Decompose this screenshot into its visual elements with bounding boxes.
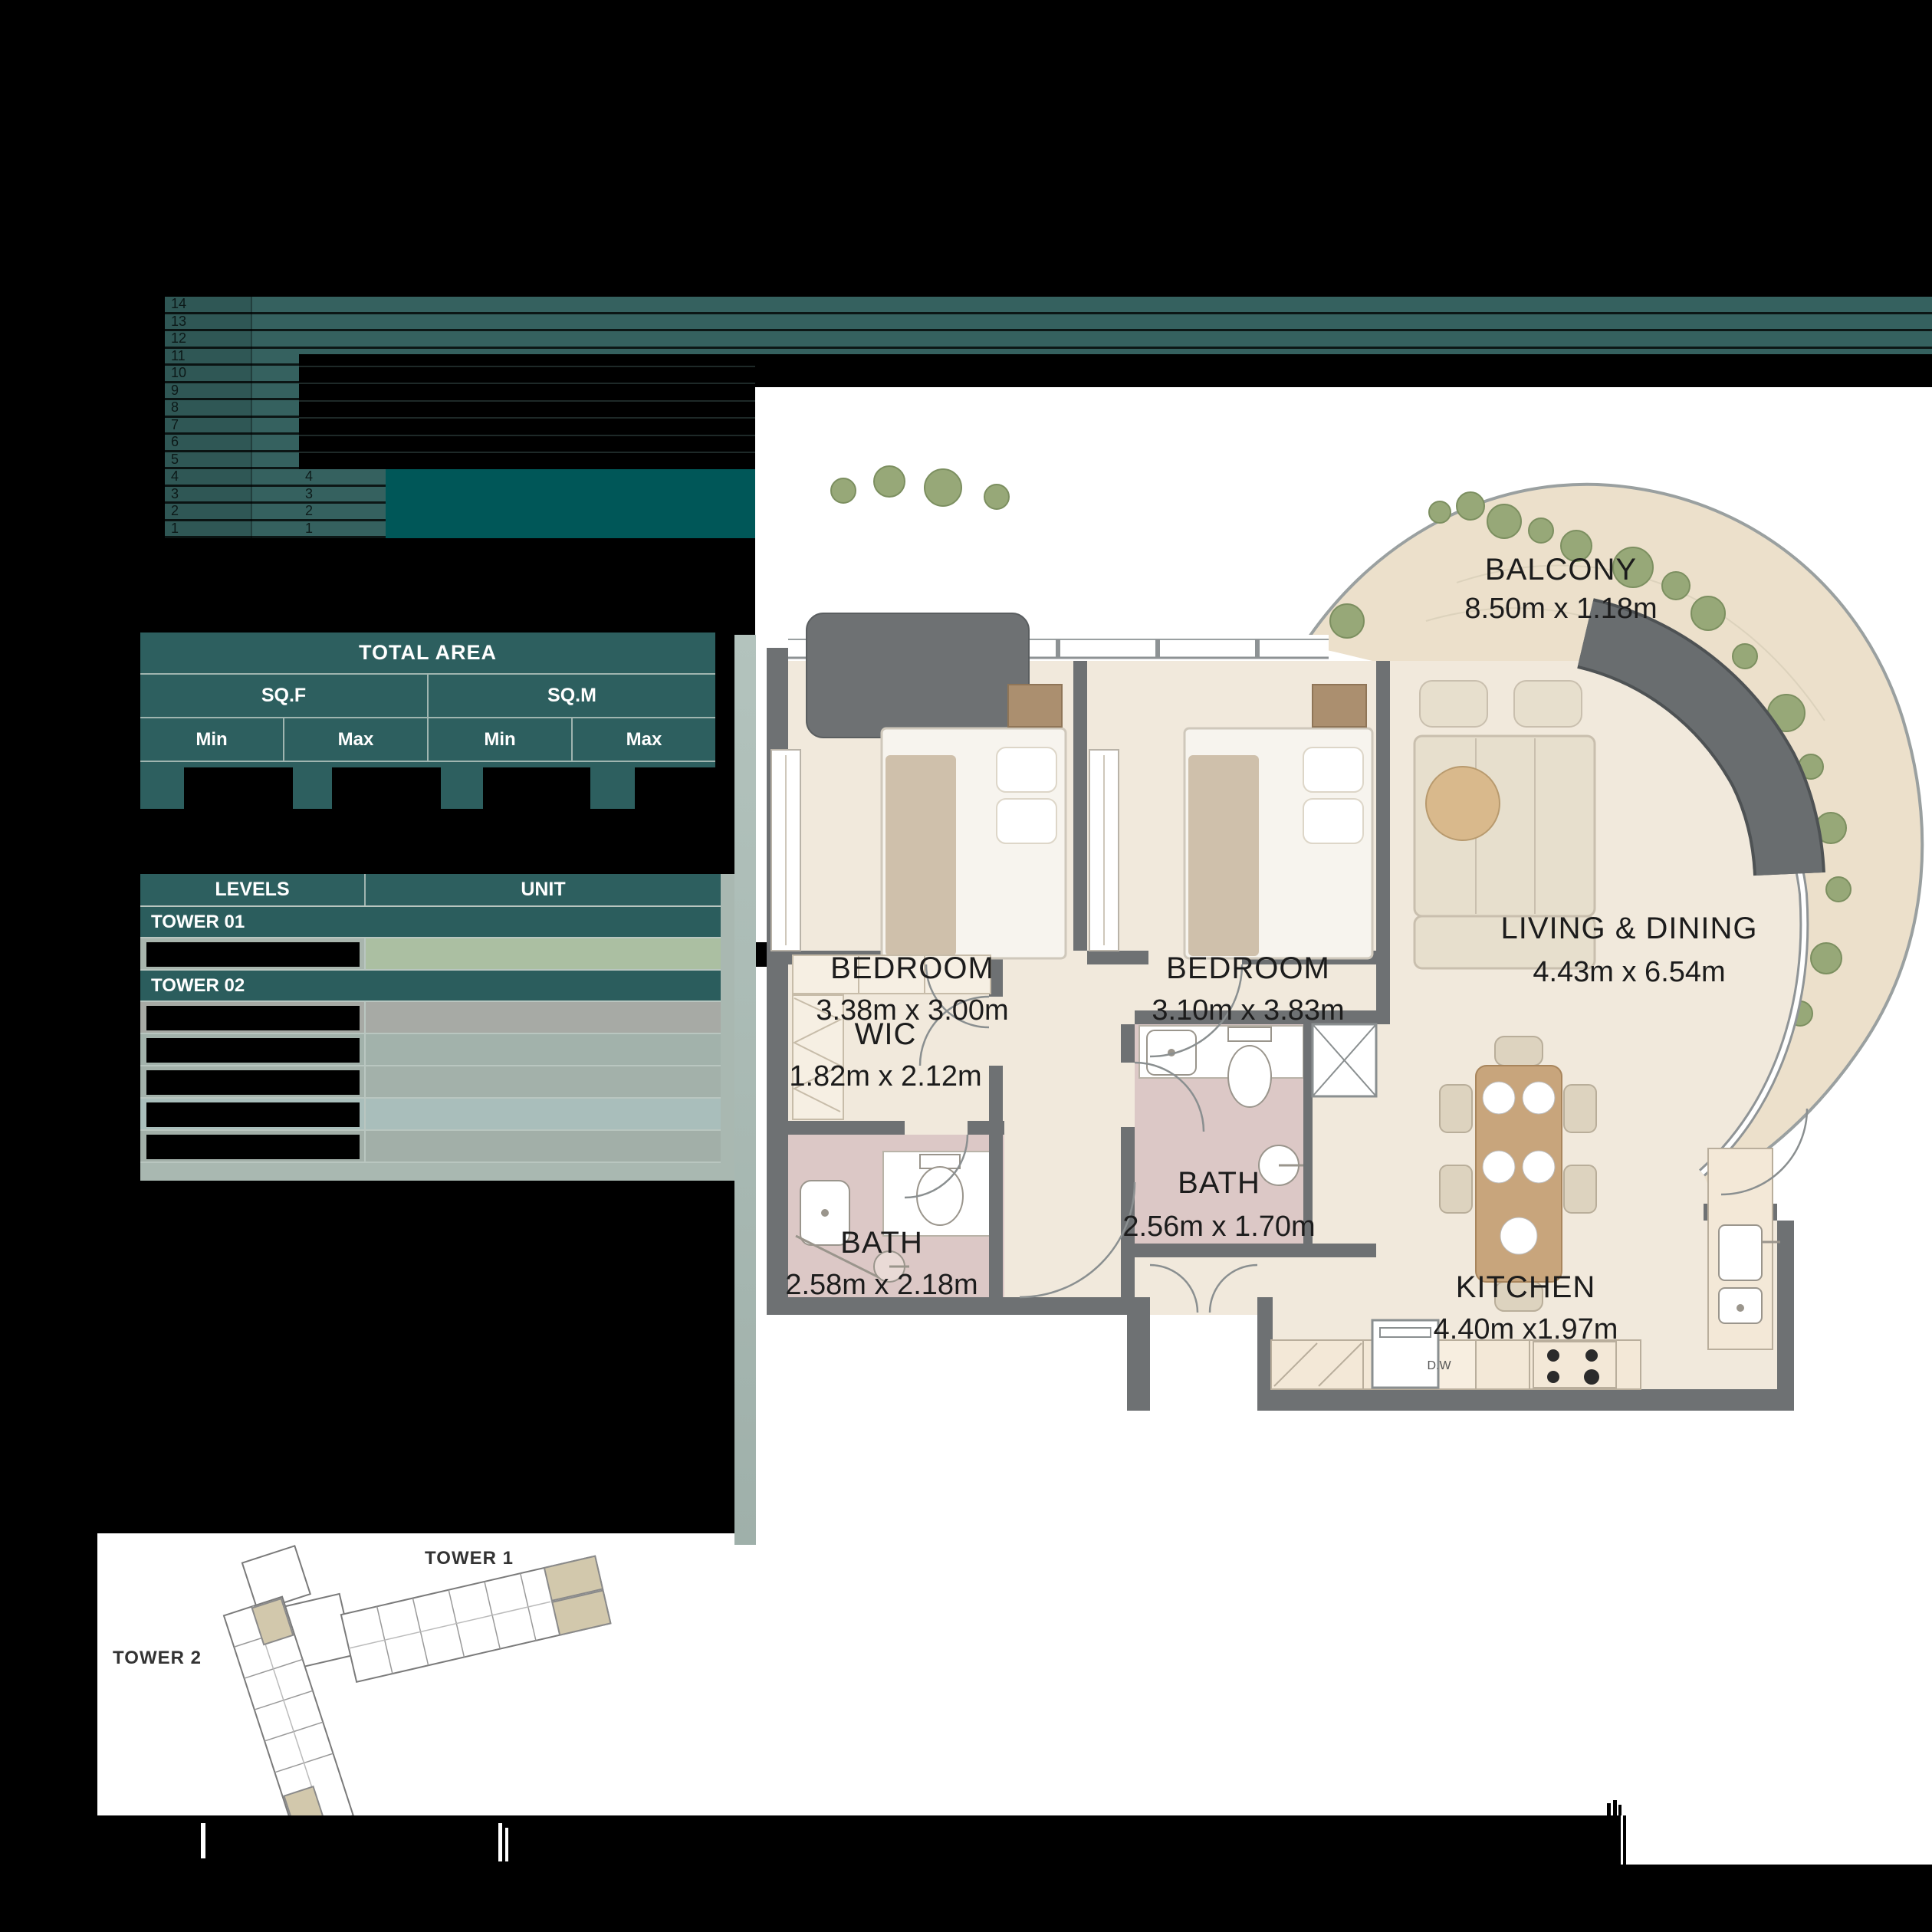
col-sqf-min: Min — [140, 718, 284, 761]
redacted-level — [146, 1038, 360, 1063]
chart-ghost-line — [299, 435, 755, 436]
clipped-text-stroke — [1613, 1800, 1617, 1815]
chart-ghost-line — [299, 452, 755, 453]
redacted-level — [146, 1135, 360, 1159]
levels-table-header: LEVELS UNIT — [140, 874, 721, 907]
header-levels: LEVELS — [140, 874, 366, 905]
levels-unit-table: LEVELS UNIT TOWER 01 TOWER 02 — [140, 874, 721, 1163]
tower-02-unit-row — [140, 1066, 721, 1099]
redacted-level — [146, 942, 360, 967]
tower2-levels-column: 4321 — [299, 469, 386, 538]
clipped-text-stroke — [1618, 1805, 1621, 1815]
clipped-text-stroke — [1623, 1815, 1626, 1865]
clipped-text-stroke — [505, 1828, 508, 1861]
redacted-value — [332, 767, 441, 809]
tower-01-row: TOWER 01 — [140, 907, 721, 938]
col-sqf: SQ.F — [140, 675, 429, 717]
bottom-right-white-block — [1621, 1815, 1932, 1865]
total-area-minmax-row: Min Max Min Max — [140, 718, 715, 762]
tower1-level-13: 13 — [165, 314, 1932, 332]
tower-02-row: TOWER 02 — [140, 971, 721, 1002]
tower2-level-4: 4 — [299, 469, 386, 487]
tower1-level-14: 14 — [165, 297, 1932, 314]
tower-02-unit-row — [140, 1099, 721, 1131]
tower-02-unit-row — [140, 1034, 721, 1066]
redacted-value — [483, 767, 590, 809]
tower-01-unit-row — [140, 938, 721, 971]
level-number: 1 — [305, 521, 313, 537]
tower2-highlight-block — [386, 469, 755, 538]
levels-column-divider — [251, 297, 252, 538]
total-area-title: TOTAL AREA — [140, 632, 715, 675]
tower2-level-2: 2 — [299, 504, 386, 521]
keyplan-panel — [97, 1533, 755, 1815]
tower-02-unit-row — [140, 1131, 721, 1163]
total-area-values-row — [140, 762, 715, 809]
redacted-level — [146, 1102, 360, 1127]
clipped-text-stroke — [201, 1823, 205, 1858]
level-number: 3 — [305, 486, 313, 502]
level-number: 2 — [305, 503, 313, 519]
tower2-level-1: 1 — [299, 521, 386, 539]
tower-02-unit-row — [140, 1002, 721, 1034]
col-sqm: SQ.M — [429, 675, 715, 717]
redacted-level — [146, 1070, 360, 1095]
side-accent-strip — [734, 635, 756, 1545]
clipped-text-stroke — [1607, 1803, 1611, 1815]
levels-column-shade — [165, 297, 251, 538]
level-number: 4 — [305, 468, 313, 485]
col-sqm-max: Max — [573, 718, 715, 761]
redacted-level — [146, 1006, 360, 1030]
floorplan-canvas — [755, 387, 1932, 1815]
header-unit: UNIT — [366, 874, 721, 905]
redacted-value — [635, 767, 715, 809]
tower2-level-3: 3 — [299, 487, 386, 504]
redacted-value — [184, 767, 293, 809]
chart-ghost-line — [299, 417, 755, 419]
redacted-unit — [749, 942, 1098, 967]
total-area-table: TOTAL AREA SQ.F SQ.M Min Max Min Max — [140, 632, 715, 809]
col-sqm-min: Min — [429, 718, 573, 761]
clipped-text-stroke — [498, 1823, 502, 1861]
floorplan-brochure-page: 1413121110987654321 4321 TOTAL AREA SQ.F… — [0, 0, 1932, 1932]
total-area-units-row: SQ.F SQ.M — [140, 675, 715, 718]
chart-ghost-line — [299, 366, 755, 367]
tower1-level-12: 12 — [165, 331, 1932, 349]
chart-ghost-line — [299, 383, 755, 384]
chart-ghost-line — [299, 400, 755, 402]
col-sqf-max: Max — [284, 718, 429, 761]
